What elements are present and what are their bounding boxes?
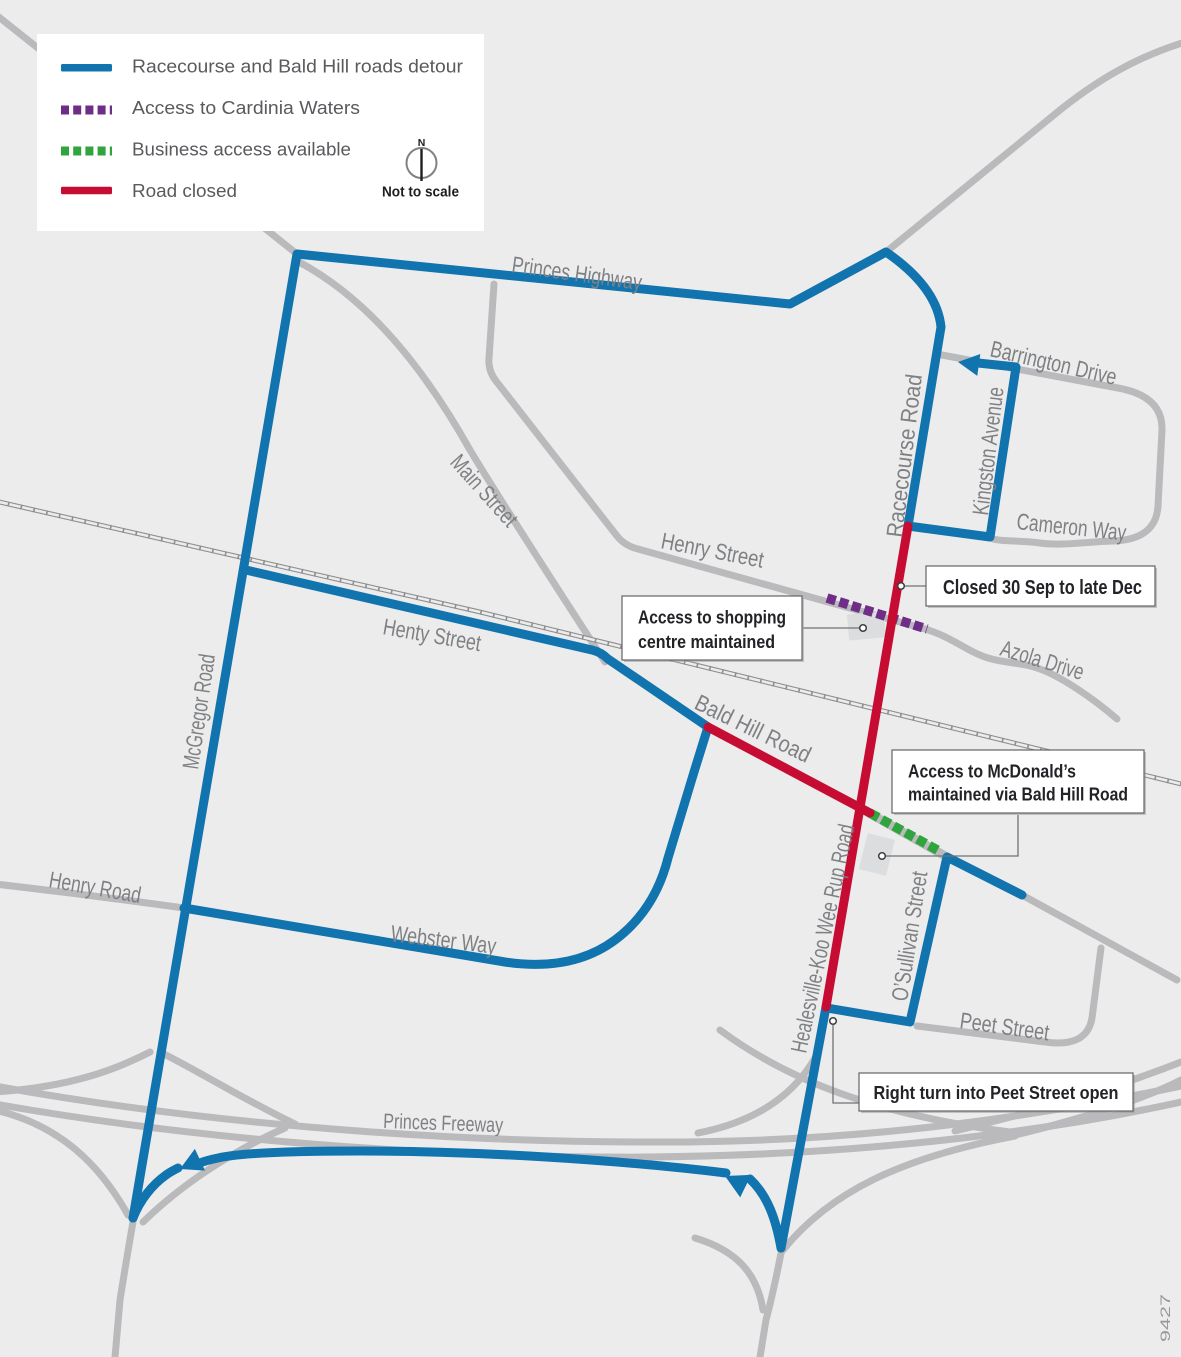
svg-text:Right turn into Peet Street op: Right turn into Peet Street open [874, 1082, 1119, 1103]
svg-text:Racecourse and Bald Hill roads: Racecourse and Bald Hill roads detour [132, 57, 463, 77]
svg-text:maintained via Bald Hill Road: maintained via Bald Hill Road [908, 785, 1128, 805]
svg-text:N: N [418, 137, 426, 149]
svg-text:9427: 9427 [1157, 1294, 1173, 1342]
svg-text:Access to Cardinia Waters: Access to Cardinia Waters [132, 98, 360, 118]
svg-text:Princes Freeway: Princes Freeway [383, 1110, 504, 1137]
svg-text:centre maintained: centre maintained [638, 632, 775, 652]
svg-text:Access to McDonald’s: Access to McDonald’s [908, 762, 1076, 782]
svg-text:Closed 30 Sep to late Dec: Closed 30 Sep to late Dec [943, 577, 1142, 599]
svg-text:Road closed: Road closed [132, 181, 237, 201]
svg-text:Access to shopping: Access to shopping [638, 608, 786, 628]
svg-text:Business access available: Business access available [132, 140, 351, 160]
svg-text:Not to scale: Not to scale [382, 185, 459, 201]
